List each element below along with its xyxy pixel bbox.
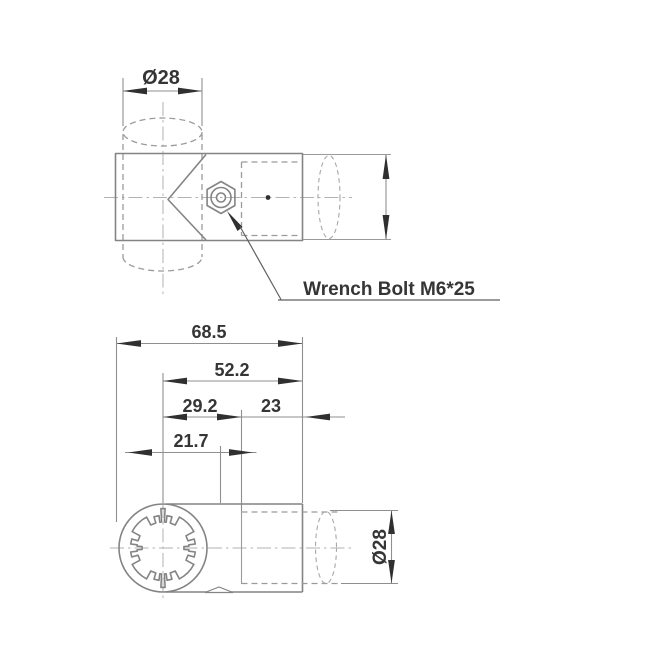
leader-line — [240, 227, 281, 300]
dim-pipe-diameter-top: Ø28 — [123, 67, 202, 126]
arrowhead-left-outside — [128, 449, 152, 456]
technical-drawing-page: Ø28 — [0, 0, 656, 656]
dim-pipe-height-right — [383, 155, 390, 240]
dim-label-21-7: 21.7 — [173, 431, 208, 451]
dim-overall-width: 68.5 — [117, 322, 303, 522]
dim-label-29-2: 29.2 — [182, 396, 217, 416]
dim-chain-29-2-and-23: 29.2 23 — [163, 396, 345, 511]
bottom-view: 68.5 52.2 29.2 23 21.7 — [110, 322, 398, 602]
arrowhead-down — [383, 215, 390, 240]
callout-leader: Wrench Bolt M6*25 — [227, 211, 500, 300]
dim-label-diameter-bottom: Ø28 — [370, 529, 391, 565]
dim-label-23: 23 — [261, 396, 281, 416]
dim-pipe-diameter-bottom: Ø28 — [330, 511, 398, 584]
callout-label: Wrench Bolt M6*25 — [303, 279, 475, 300]
clamp-seam-tab — [205, 587, 233, 593]
hidden-pipe-bore — [242, 162, 301, 236]
right-pipe — [303, 155, 391, 240]
arrowhead-right — [278, 340, 303, 347]
arrowhead-left — [117, 340, 142, 347]
arrowhead-mid — [217, 414, 242, 421]
arrowhead-right-outside — [306, 414, 331, 421]
arrowhead-right — [178, 88, 202, 95]
center-mark-dot — [266, 195, 271, 200]
arrowhead-right — [278, 378, 303, 385]
drawing-canvas: Ø28 — [0, 0, 656, 656]
dim-label-diameter-top: Ø28 — [142, 67, 180, 89]
dim-center-to-bolt-axis: 21.7 — [125, 431, 257, 503]
dim-label-overall: 68.5 — [191, 322, 226, 342]
arrowhead-up — [383, 155, 390, 180]
arrowhead-left — [163, 378, 187, 385]
dim-label-52-2: 52.2 — [214, 360, 249, 380]
top-view: Ø28 — [104, 67, 500, 300]
